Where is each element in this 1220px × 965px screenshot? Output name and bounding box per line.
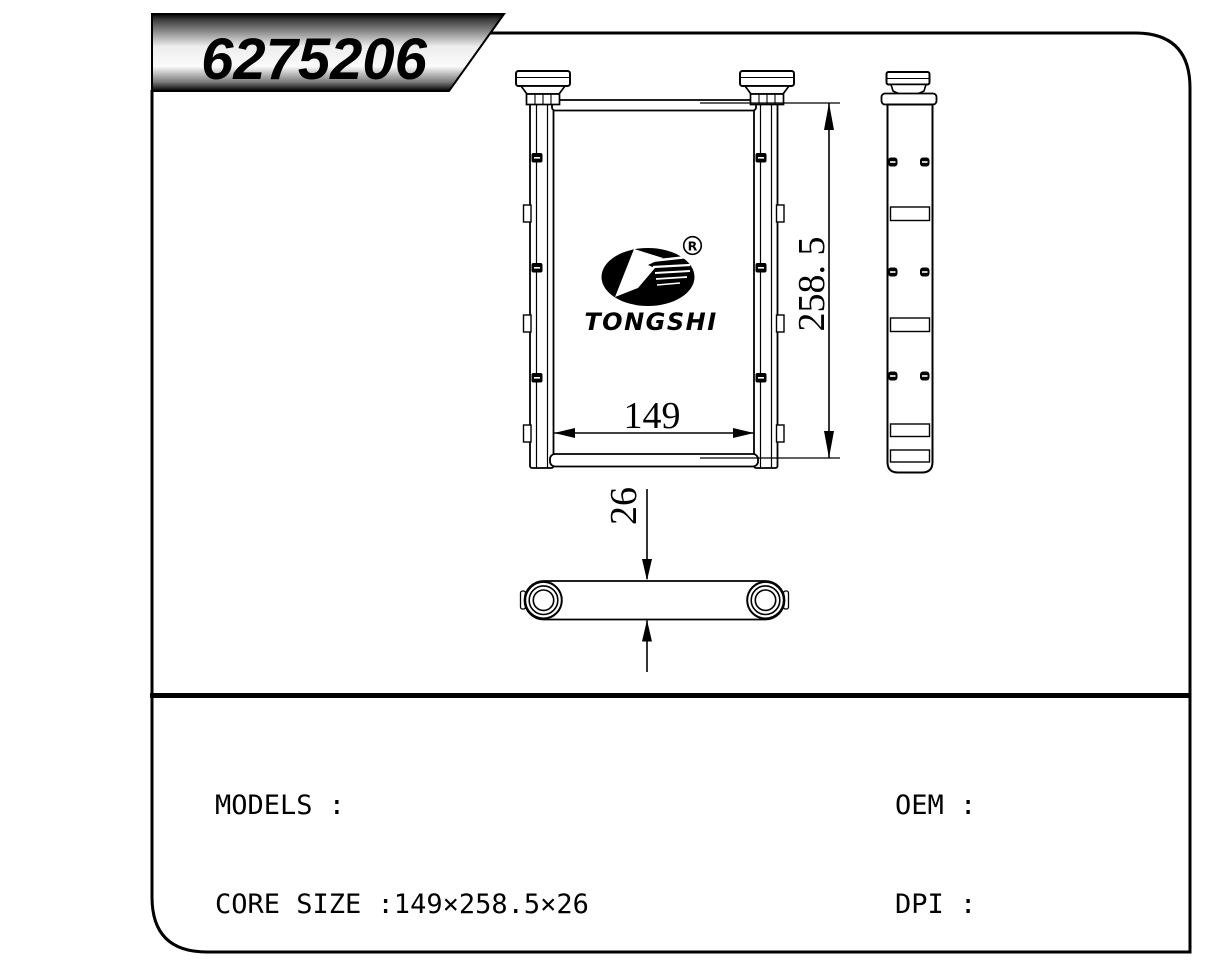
spec-oem: OEM : (895, 788, 1041, 825)
title-banner: 6275206 (152, 14, 504, 92)
depth-dimension-label: 26 (603, 487, 645, 525)
svg-text:R: R (688, 239, 698, 254)
bottom-view (521, 581, 789, 620)
spec-table-left: MODELS : CORE SIZE :149×258.5×26 TANK SI… (215, 726, 589, 965)
spec-models: MODELS : (215, 788, 589, 825)
side-view (882, 72, 937, 473)
bottom-plate (550, 454, 758, 467)
right-tube (754, 96, 784, 468)
brand-name: TONGSHI (584, 308, 717, 336)
left-tube (524, 96, 554, 468)
width-dimension: 149 (554, 395, 754, 438)
depth-dimension: 26 (603, 487, 652, 672)
logo-mark-icon (602, 248, 695, 306)
height-dimension-label: 258. 5 (791, 237, 833, 332)
registered-mark-icon: R (684, 237, 702, 255)
width-dimension-label: 149 (624, 395, 681, 437)
part-number: 6275206 (201, 27, 428, 92)
spec-core-size: CORE SIZE :149×258.5×26 (215, 887, 589, 924)
spec-dpi: DPI : (895, 887, 1041, 924)
right-port (747, 582, 784, 619)
spec-table-right: OEM : DPI : AVA : NISSENS : (895, 726, 1041, 965)
top-plate (552, 100, 756, 111)
drawing-sheet: 6275206 (0, 0, 1220, 965)
brand-logo: R TONGSHI (584, 237, 717, 336)
left-port (525, 582, 562, 619)
